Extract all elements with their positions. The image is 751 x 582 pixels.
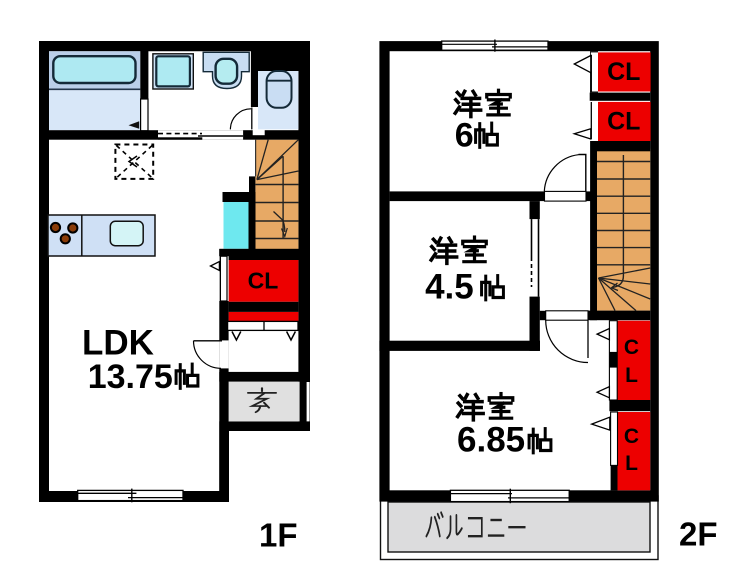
svg-text:CL: CL: [607, 108, 640, 136]
svg-text:C: C: [624, 336, 639, 359]
svg-text:4.5: 4.5: [425, 268, 474, 307]
svg-text:C: C: [624, 425, 639, 448]
svg-text:6: 6: [455, 117, 474, 155]
svg-text:LDK: LDK: [82, 324, 154, 363]
svg-text:CL: CL: [248, 268, 279, 294]
svg-text:CL: CL: [607, 58, 640, 86]
svg-text:6.85: 6.85: [457, 421, 525, 460]
svg-text:2F: 2F: [679, 516, 718, 553]
svg-text:13.75: 13.75: [88, 358, 173, 396]
svg-text:L: L: [625, 452, 638, 475]
svg-text:1F: 1F: [259, 517, 298, 554]
svg-text:L: L: [625, 364, 638, 387]
